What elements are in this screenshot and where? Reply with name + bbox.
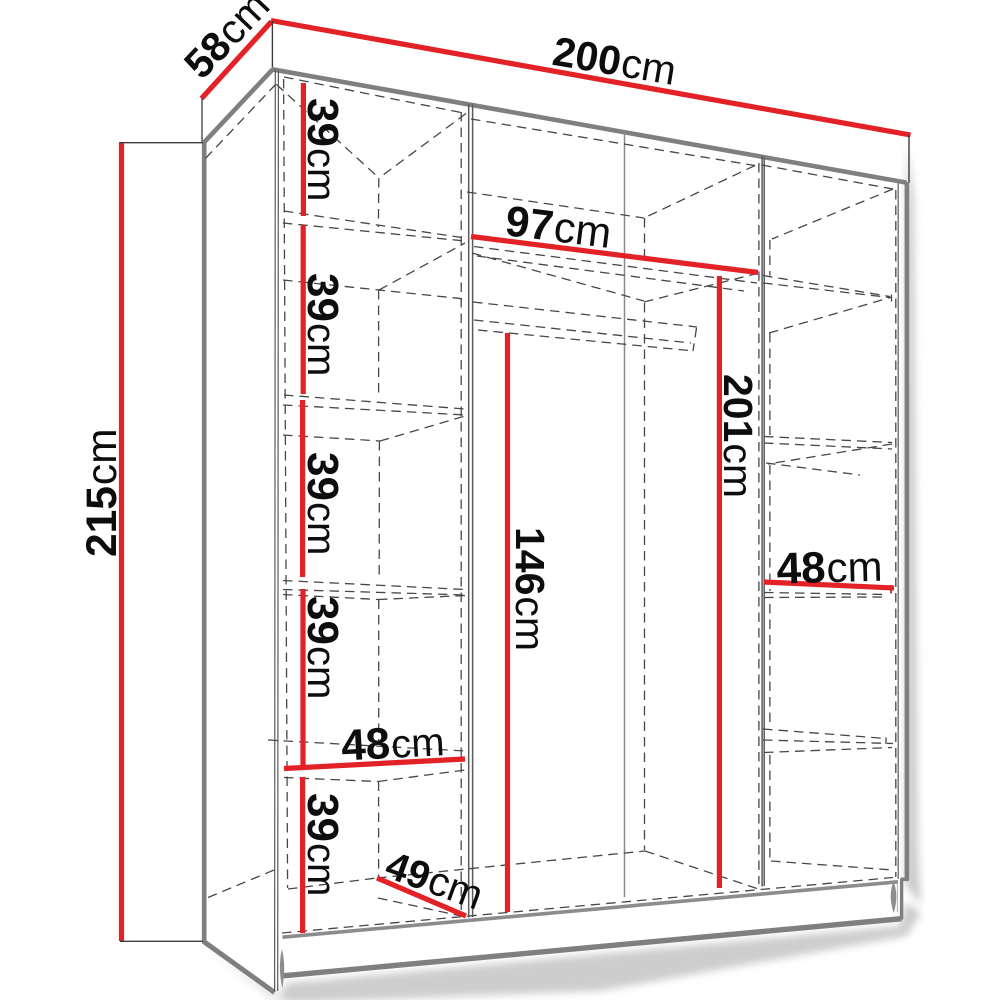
svg-text:39cm: 39cm [298, 596, 347, 699]
svg-text:39cm: 39cm [298, 98, 347, 201]
svg-text:215cm: 215cm [79, 428, 126, 557]
svg-text:39cm: 39cm [298, 452, 347, 555]
svg-text:39cm: 39cm [298, 273, 347, 376]
svg-text:39cm: 39cm [298, 793, 347, 896]
svg-text:201cm: 201cm [715, 374, 761, 498]
svg-text:146cm: 146cm [507, 527, 553, 651]
svg-text:48cm: 48cm [776, 542, 883, 594]
svg-text:48cm: 48cm [340, 716, 446, 770]
